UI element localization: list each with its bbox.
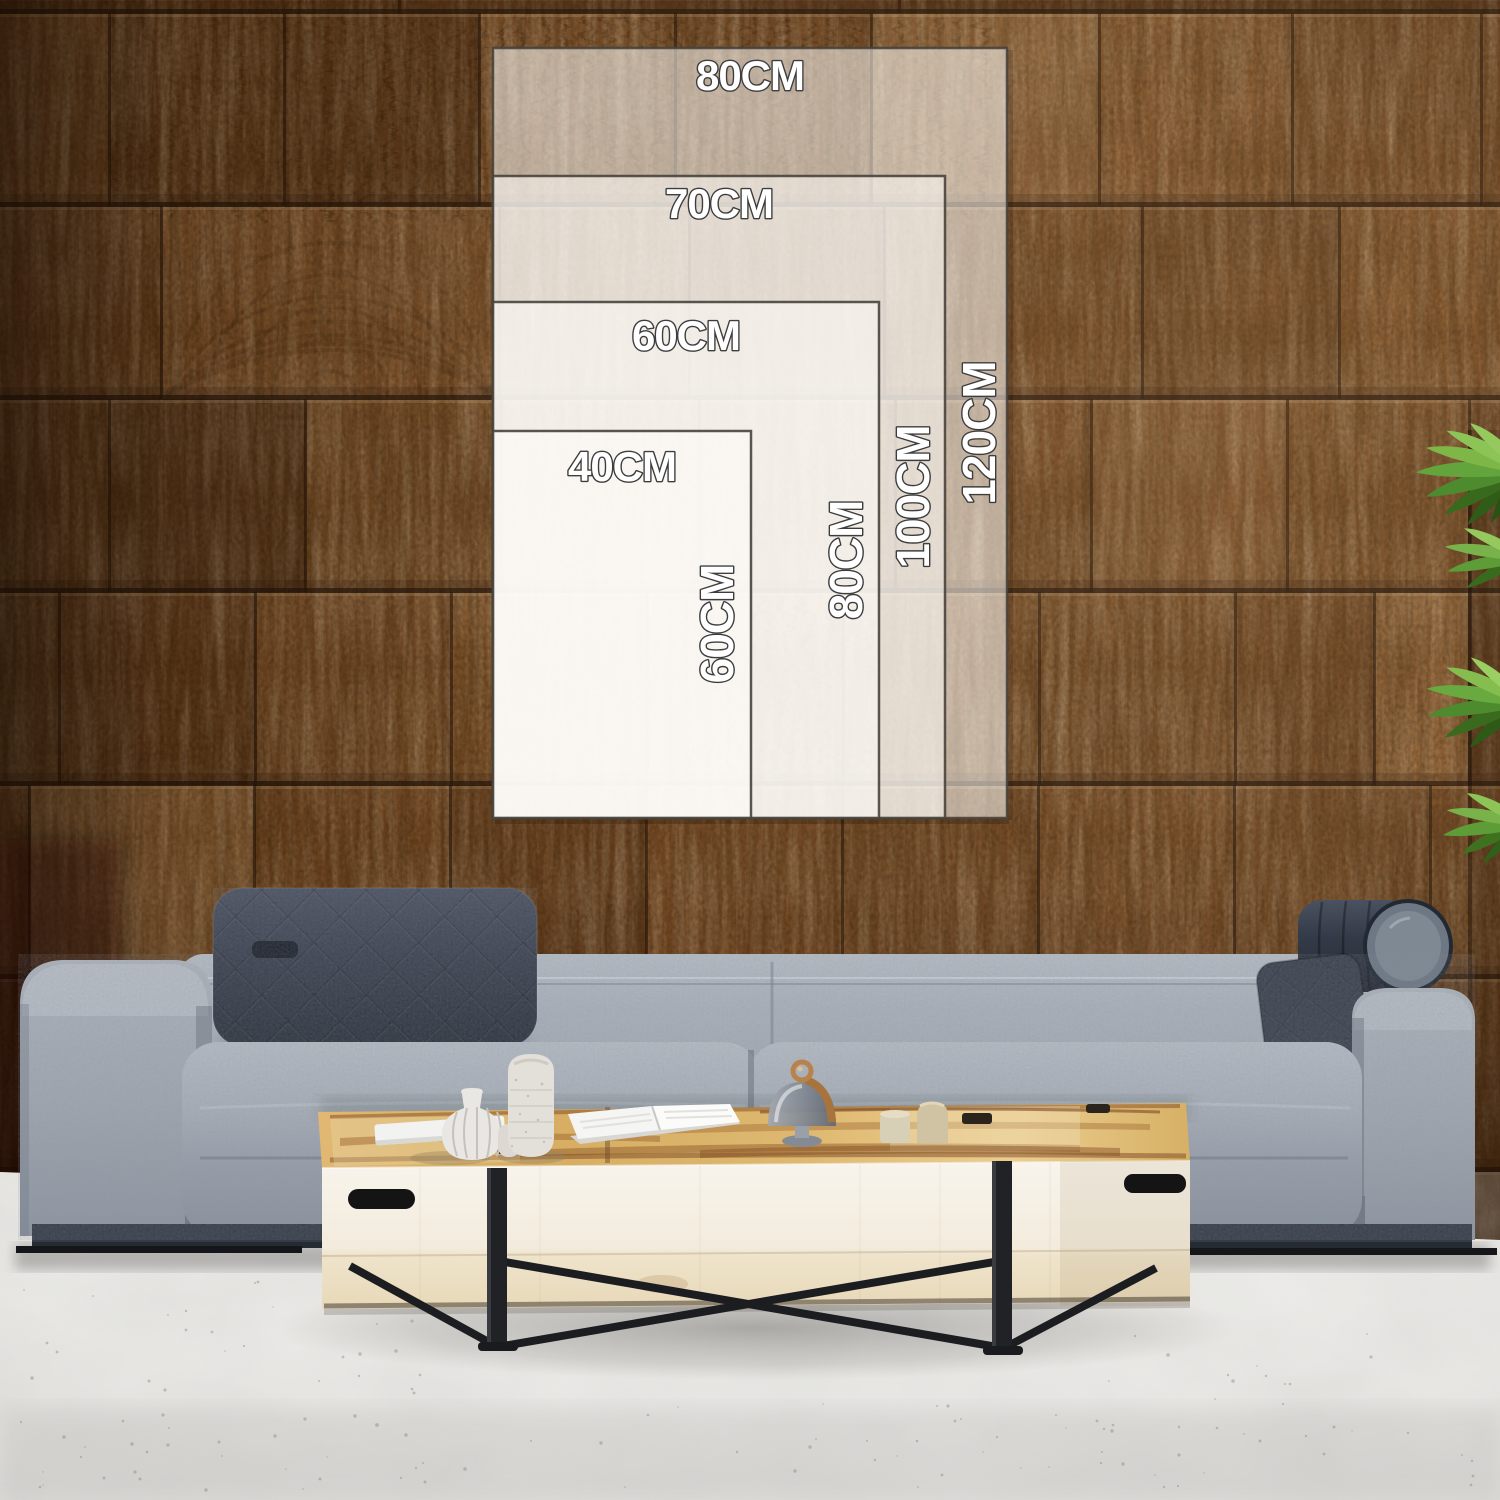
svg-text:100CM: 100CM <box>887 425 939 568</box>
svg-text:60CM: 60CM <box>632 312 740 359</box>
svg-text:60CM: 60CM <box>691 565 743 684</box>
svg-text:80CM: 80CM <box>820 501 872 620</box>
svg-text:70CM: 70CM <box>665 180 773 227</box>
svg-text:40CM: 40CM <box>568 443 676 490</box>
svg-text:80CM: 80CM <box>696 52 804 99</box>
svg-text:120CM: 120CM <box>953 361 1005 504</box>
